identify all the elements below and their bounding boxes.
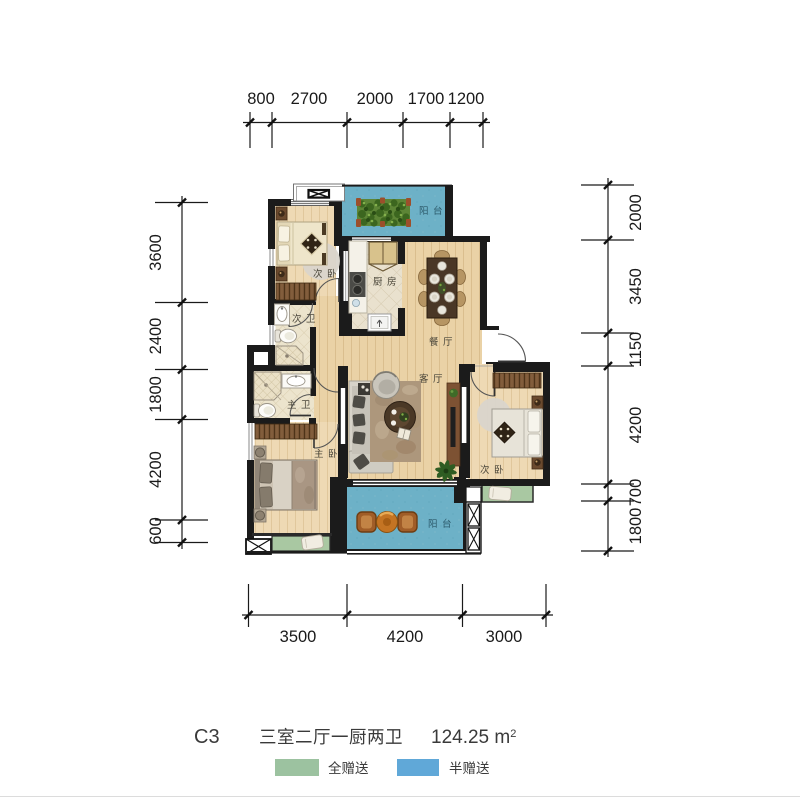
svg-text:1800: 1800 [147, 376, 165, 413]
svg-text:4200: 4200 [387, 628, 424, 646]
svg-text:2000: 2000 [627, 194, 645, 231]
svg-text:4200: 4200 [147, 451, 165, 488]
svg-text:1200: 1200 [448, 90, 485, 108]
svg-text:700: 700 [627, 479, 645, 507]
svg-text:主卧: 主卧 [314, 448, 342, 460]
svg-text:4200: 4200 [627, 407, 645, 444]
svg-text:1150: 1150 [627, 332, 645, 367]
svg-text:124.25 m2: 124.25 m2 [431, 727, 516, 748]
svg-text:2400: 2400 [147, 318, 165, 355]
svg-text:餐厅: 餐厅 [429, 336, 457, 348]
svg-text:厨房: 厨房 [373, 276, 401, 288]
svg-text:1800: 1800 [627, 508, 645, 545]
svg-text:阳台: 阳台 [419, 205, 447, 217]
svg-text:半赠送: 半赠送 [449, 761, 490, 776]
svg-text:3000: 3000 [486, 628, 523, 646]
svg-text:2000: 2000 [357, 90, 394, 108]
svg-text:C3: C3 [194, 726, 220, 748]
svg-text:阳台: 阳台 [428, 518, 456, 530]
svg-text:3600: 3600 [147, 234, 165, 271]
svg-text:次卧: 次卧 [480, 464, 508, 476]
svg-text:1700: 1700 [408, 90, 445, 108]
svg-text:3500: 3500 [280, 628, 317, 646]
svg-text:600: 600 [147, 517, 165, 545]
svg-text:2700: 2700 [291, 90, 328, 108]
svg-text:800: 800 [247, 90, 275, 108]
svg-text:3450: 3450 [627, 268, 645, 305]
svg-text:客厅: 客厅 [419, 373, 447, 385]
svg-text:三室二厅一厨两卫: 三室二厅一厨两卫 [259, 727, 403, 747]
svg-text:次卧: 次卧 [313, 268, 341, 280]
svg-text:主卫: 主卫 [287, 399, 315, 411]
svg-text:全赠送: 全赠送 [328, 760, 369, 776]
svg-text:次卫: 次卫 [292, 313, 320, 325]
